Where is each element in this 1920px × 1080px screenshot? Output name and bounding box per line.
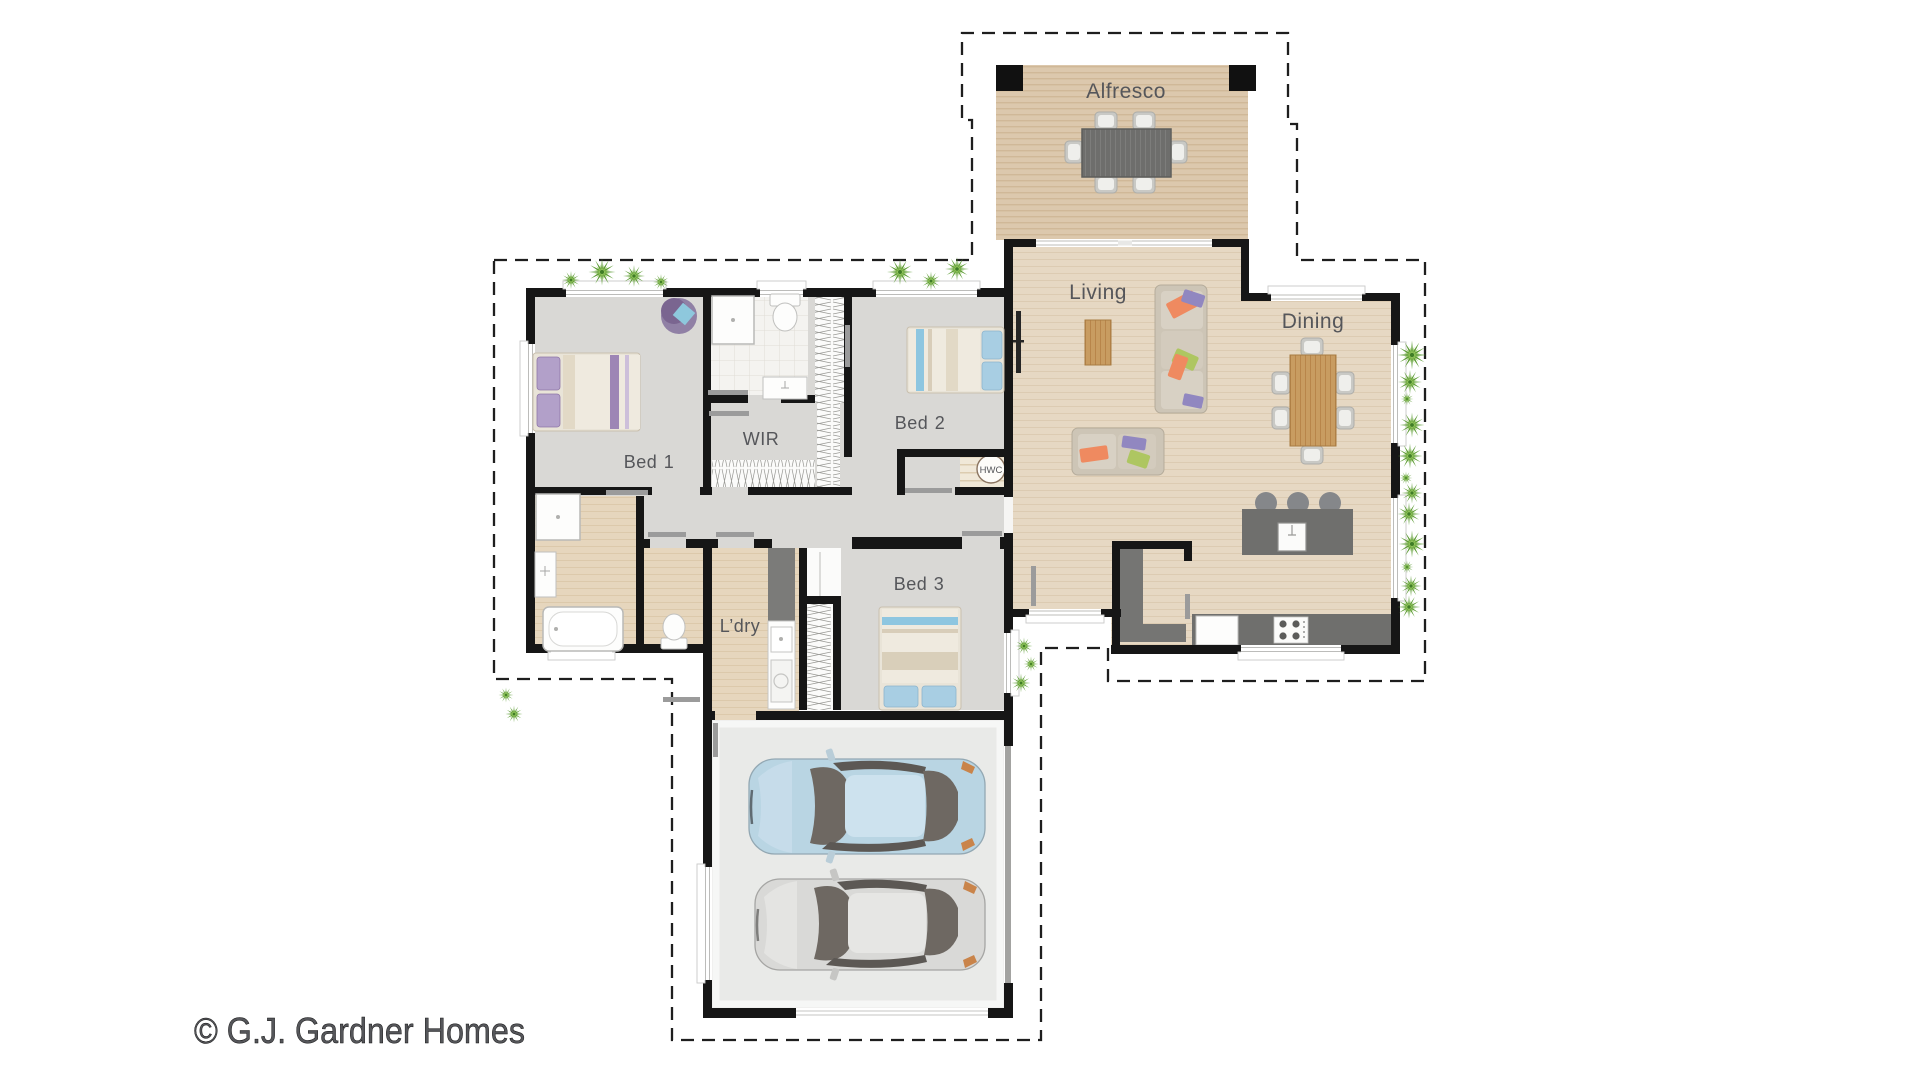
svg-text:Bed 3: Bed 3 — [894, 574, 945, 594]
svg-text:Bed 2: Bed 2 — [895, 413, 946, 433]
svg-text:© G.J. Gardner Homes: © G.J. Gardner Homes — [194, 1010, 525, 1051]
svg-text:HWC: HWC — [980, 465, 1003, 476]
svg-text:Dining: Dining — [1282, 310, 1345, 333]
svg-text:Living: Living — [1069, 281, 1127, 304]
svg-text:Bed 1: Bed 1 — [624, 452, 675, 472]
svg-text:WIR: WIR — [743, 429, 780, 449]
svg-text:L’dry: L’dry — [720, 616, 761, 636]
svg-text:Alfresco: Alfresco — [1086, 80, 1166, 103]
